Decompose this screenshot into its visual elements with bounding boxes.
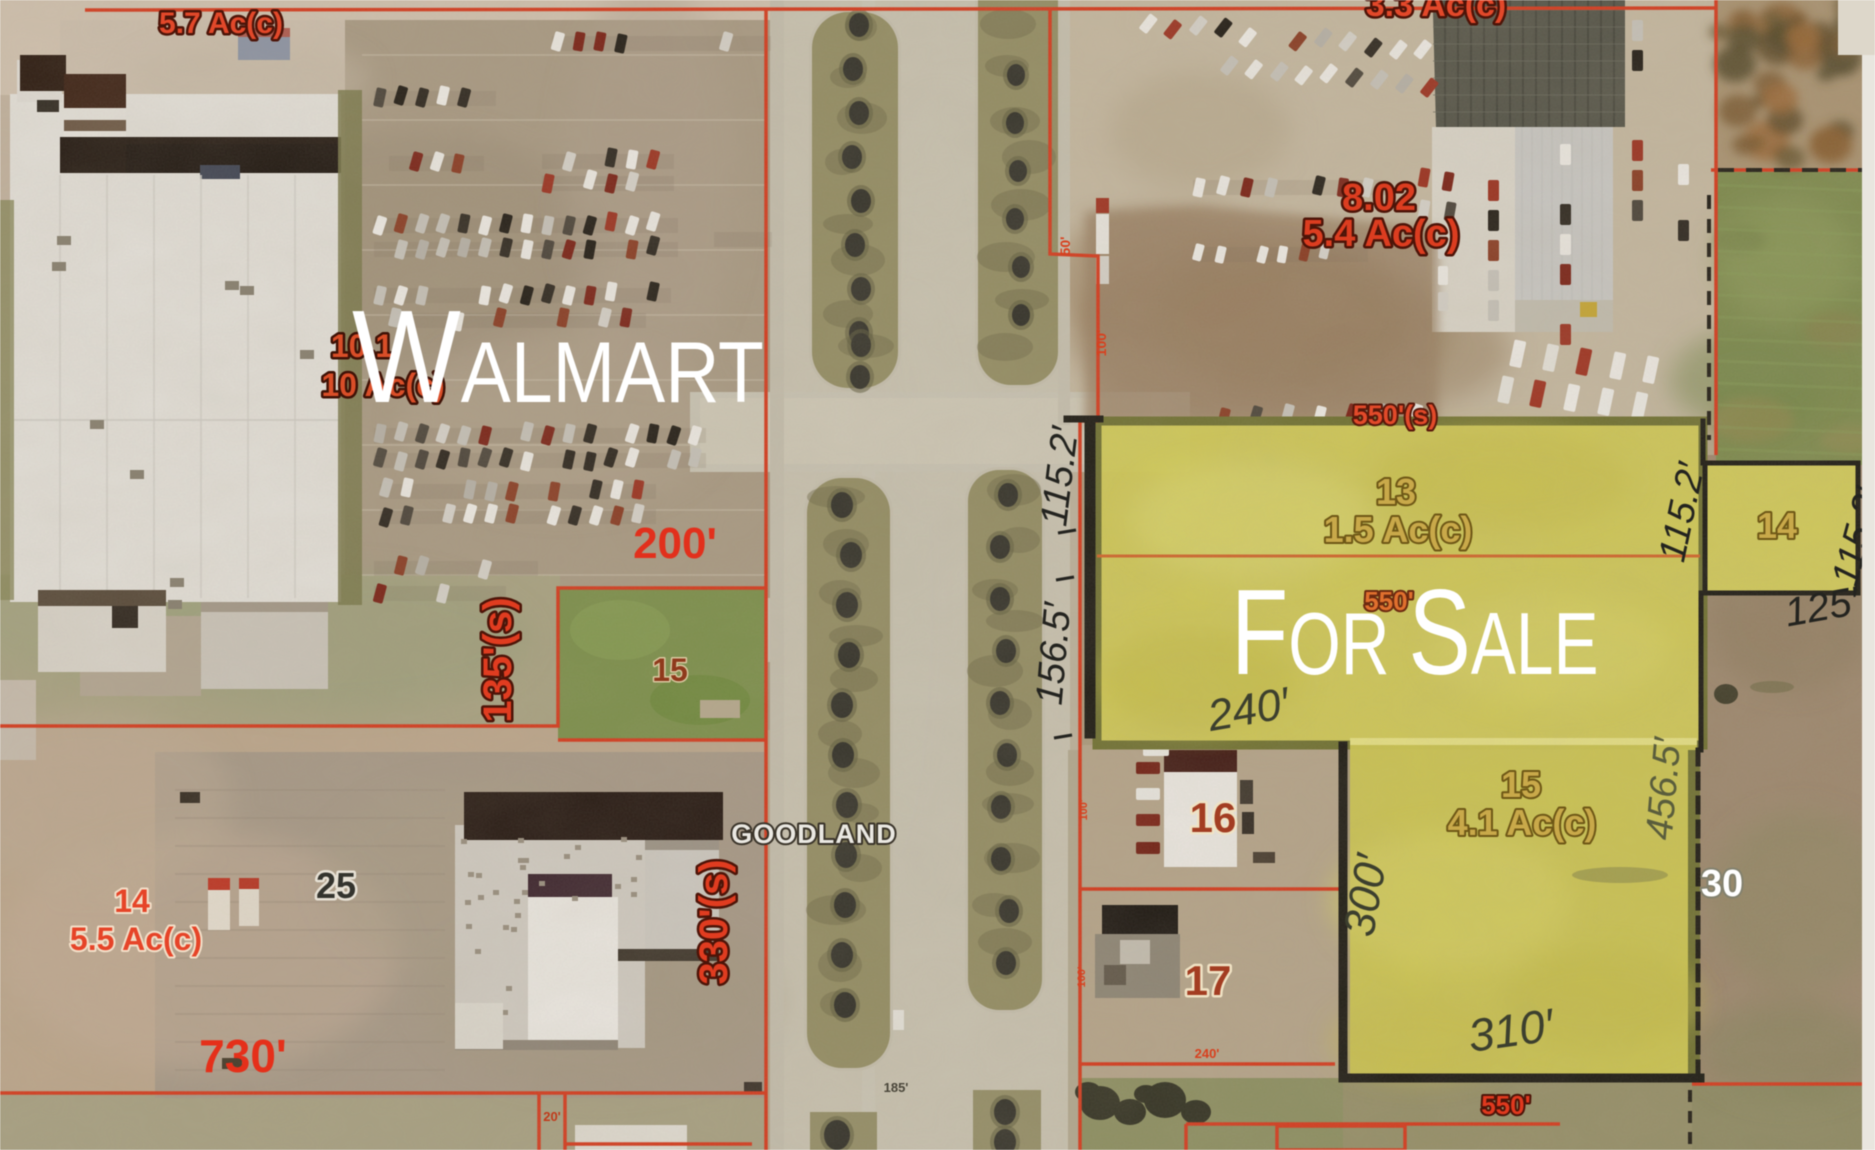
svg-text:100': 100' — [1076, 966, 1088, 987]
svg-text:5.7 Ac(c): 5.7 Ac(c) — [159, 7, 283, 40]
svg-text:16: 16 — [1190, 794, 1237, 841]
svg-text:550': 550' — [1481, 1090, 1531, 1120]
svg-text:14: 14 — [1757, 505, 1797, 546]
svg-text:200': 200' — [633, 519, 717, 568]
svg-text:100': 100' — [1093, 330, 1109, 357]
svg-text:17: 17 — [1185, 957, 1232, 1004]
svg-text:135'(s): 135'(s) — [476, 597, 520, 722]
svg-text:15: 15 — [1501, 764, 1541, 805]
svg-text:14: 14 — [114, 883, 150, 919]
svg-text:5.5 Ac(c): 5.5 Ac(c) — [70, 921, 202, 957]
svg-text:20': 20' — [543, 1109, 561, 1124]
svg-text:730': 730' — [199, 1030, 287, 1082]
svg-text:100': 100' — [1078, 799, 1090, 820]
svg-text:50': 50' — [1057, 237, 1073, 256]
svg-text:13: 13 — [1376, 471, 1416, 512]
svg-text:185': 185' — [884, 1080, 909, 1095]
svg-text:330'(s): 330'(s) — [692, 859, 736, 984]
svg-text:550'(s): 550'(s) — [1353, 400, 1437, 430]
svg-text:GOODLAND: GOODLAND — [731, 819, 897, 849]
svg-text:240': 240' — [1195, 1046, 1220, 1061]
svg-text:1.5 Ac(c): 1.5 Ac(c) — [1324, 509, 1473, 550]
svg-text:3.3 Ac(c): 3.3 Ac(c) — [1366, 0, 1506, 24]
svg-text:30: 30 — [1701, 863, 1743, 905]
svg-text:25: 25 — [316, 865, 356, 906]
svg-text:15: 15 — [652, 652, 688, 688]
svg-text:4.1 Ac(c): 4.1 Ac(c) — [1448, 802, 1597, 843]
svg-text:5.4 Ac(c): 5.4 Ac(c) — [1303, 213, 1460, 255]
